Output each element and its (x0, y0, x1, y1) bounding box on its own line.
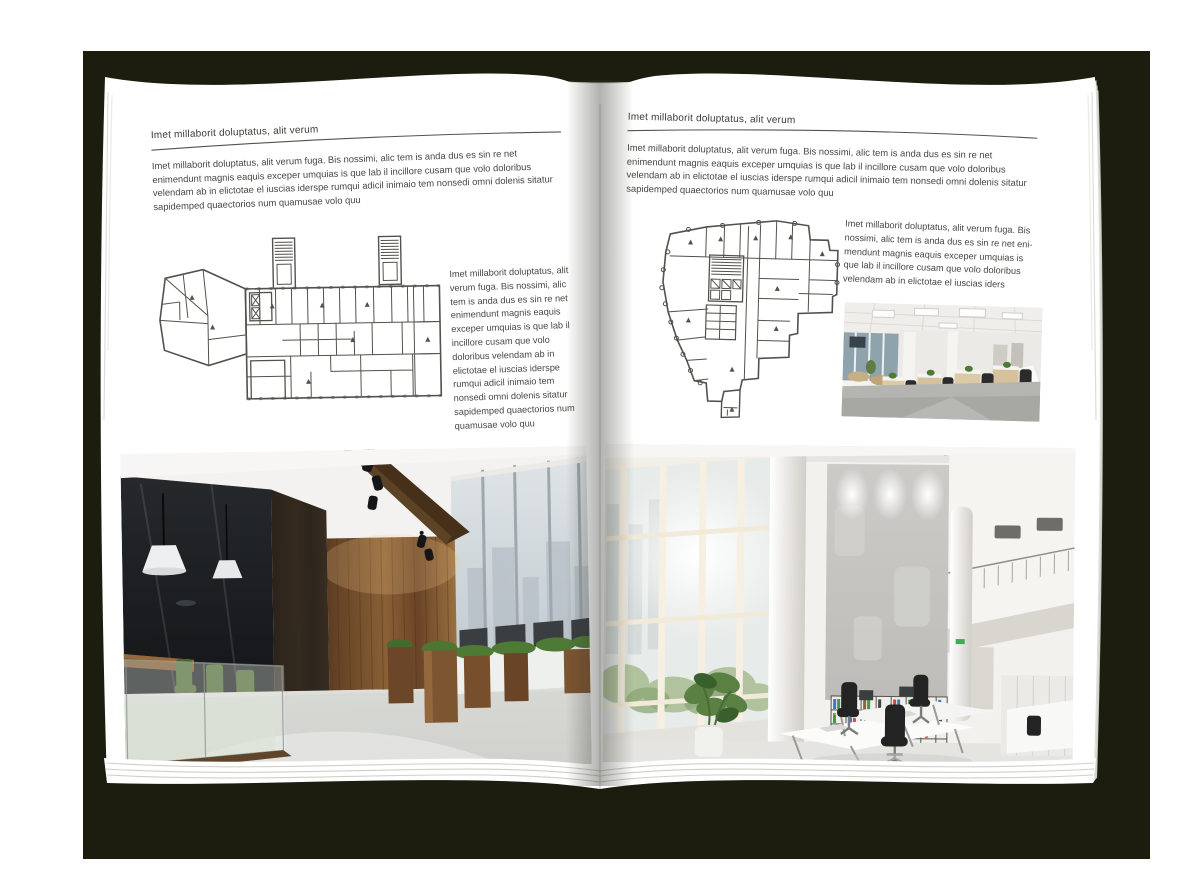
left-office-photo (120, 446, 591, 772)
left-page-header: Imet millaborit doluptatus, alit verum I… (151, 116, 566, 214)
cabinets-right (1001, 675, 1074, 756)
right-small-photo (841, 302, 1042, 421)
right-floorplan (643, 211, 845, 424)
right-page-header: Imet millaborit doluptatus, alit verum I… (626, 112, 1042, 204)
right-intro-paragraph: Imet millaborit doluptatus, alit verum f… (626, 141, 1041, 204)
left-side-paragraph: Imet millaborit doluptatus, alit verum f… (449, 264, 577, 434)
right-side-paragraph: Imet millaborit doluptatus, alit verum f… (843, 217, 1034, 293)
left-floorplan (148, 223, 447, 420)
plan-room-markers (190, 291, 432, 386)
right-office-photo (603, 444, 1076, 766)
magazine-mockup-scene: Imet millaborit doluptatus, alit verum I… (0, 0, 1200, 891)
plan-room-markers (683, 231, 825, 414)
